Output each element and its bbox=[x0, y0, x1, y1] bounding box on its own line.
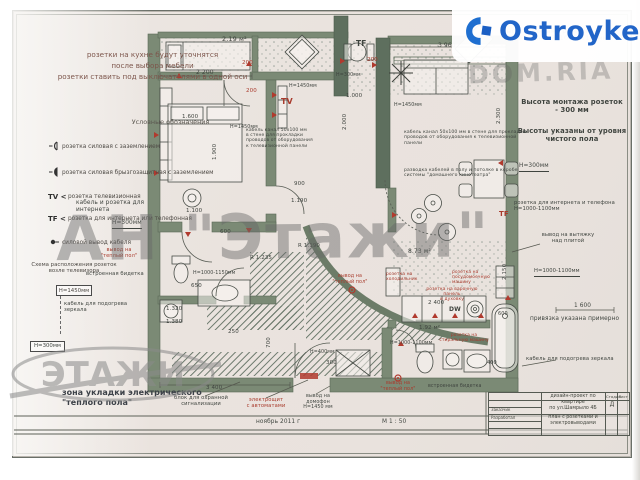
plan-label: 200 bbox=[367, 57, 378, 63]
legend-row: розетка силовая с заземлением bbox=[48, 141, 293, 153]
plan-label: Н=1000-1100мм bbox=[534, 269, 580, 277]
agency-logo-watermark: ЭТАЖИ bbox=[8, 344, 223, 408]
plan-label: H=1000-1100мм bbox=[390, 341, 432, 347]
plan-label: разводка кабелей в полу и потолке в коро… bbox=[404, 168, 528, 179]
plan-label: розетка на посудомоечную машину bbox=[452, 270, 508, 285]
plan-label: вывод на "теплый пол" bbox=[330, 274, 370, 285]
plan-label: 2.000 bbox=[342, 114, 348, 130]
tv-scheme-height-top: Н=1450мм bbox=[56, 285, 92, 296]
agency-watermark: АН "Этажи" bbox=[56, 198, 537, 275]
plan-label: 200 bbox=[246, 88, 257, 94]
plan-label: кабель для подогрева зеркала bbox=[526, 357, 618, 363]
brand-watermark-band: Ostroyke bbox=[452, 0, 640, 62]
title-block-row-customer: Заказчик bbox=[491, 407, 510, 412]
plan-label: 1.320 bbox=[166, 306, 182, 312]
plan-label: вывод на вытяжку над плитой bbox=[540, 233, 596, 245]
plan-label: 300 bbox=[326, 360, 337, 366]
title-block-row-designer: Разработал bbox=[491, 415, 515, 420]
title-block-sheet-label: Лист bbox=[618, 394, 628, 399]
socket-splashproof-icon bbox=[48, 167, 62, 179]
plan-label: М 1 : 50 bbox=[382, 419, 406, 426]
legend-title: Условные обозначения bbox=[48, 118, 293, 126]
kitchen-sockets-note: розетки на кухне будут уточнятся после в… bbox=[30, 50, 275, 82]
tv-scheme-connector bbox=[60, 296, 61, 334]
title-block: дизайн-проект по квартире по ул.Шамрыло … bbox=[488, 392, 630, 436]
plan-label: 1.000 bbox=[346, 93, 362, 99]
plan-label: встроенная бидетка bbox=[428, 384, 490, 390]
plan-label: Высота монтажа розеток - 300 мм bbox=[516, 99, 628, 115]
plan-label: TF bbox=[356, 40, 366, 49]
plan-label: Высоты указаны от уровня чистого пола bbox=[512, 128, 632, 144]
plan-label: H=400мм bbox=[310, 350, 335, 356]
plan-label: H=1450мм bbox=[289, 84, 317, 90]
legend-label: розетка силовая брызгозащитная с заземле… bbox=[62, 170, 214, 176]
legend-label: розетка силовая с заземлением bbox=[62, 144, 160, 150]
plan-label: 600 bbox=[498, 312, 508, 318]
plan-label: 1 600 bbox=[574, 303, 591, 310]
plan-label: DW bbox=[449, 307, 461, 314]
agency-logo-text: ЭТАЖИ bbox=[41, 355, 186, 395]
plan-label: 2 400 bbox=[428, 300, 444, 306]
plan-label: ноябрь 2011 г bbox=[256, 419, 300, 426]
socket-grounded-icon bbox=[48, 141, 62, 153]
plan-label: кабель для подогрева зеркала bbox=[64, 302, 150, 314]
plan-label: вывод на домофон Н=1450 мм bbox=[300, 394, 336, 411]
plan-label: H=1450мм bbox=[394, 103, 422, 109]
plan-label: привязка указана примерно bbox=[530, 316, 634, 323]
plan-label: 1.380 bbox=[166, 319, 182, 325]
plan-label: 250 bbox=[228, 329, 239, 335]
floor-plan-photo: розетки на кухне будут уточнятся после в… bbox=[0, 0, 640, 480]
plan-label: 900 bbox=[294, 181, 305, 187]
title-block-stage-label: Стадия bbox=[606, 394, 618, 399]
legend-row: розетка силовая брызгозащитная с заземле… bbox=[48, 167, 293, 179]
title-block-project: дизайн-проект по квартире по ул.Шамрыло … bbox=[541, 394, 605, 414]
plan-label: 2.300 bbox=[496, 108, 502, 124]
legend-label: розетка телевизионная bbox=[68, 194, 141, 200]
title-block-drawing-name: план с розетками и электровыводами bbox=[541, 415, 605, 433]
plan-label: 400 bbox=[487, 361, 497, 367]
brand-watermark-text: Ostroyke bbox=[499, 16, 640, 47]
plan-label: розетка на стиральную машину bbox=[438, 333, 490, 343]
plan-label: H=300мм bbox=[336, 73, 361, 79]
plan-label: TV bbox=[281, 97, 293, 106]
plan-label: вывод на "теплый пол" bbox=[378, 381, 418, 392]
plan-label: 1.92 м² bbox=[419, 325, 440, 331]
title-block-stage-value: Д bbox=[606, 401, 618, 408]
tv-socket-key: TV < bbox=[48, 193, 68, 201]
plan-label: Н=300мм bbox=[519, 163, 549, 172]
plan-label: кабель канал 50х100 мм в стене для прокл… bbox=[404, 130, 528, 146]
ostroyke-logo-icon bbox=[464, 8, 493, 54]
plan-label: розетка на холодильник bbox=[386, 272, 426, 282]
plan-label: 2.19 м² bbox=[222, 36, 247, 43]
plan-label: 700 bbox=[266, 337, 272, 348]
plan-label: 650 bbox=[191, 283, 202, 289]
